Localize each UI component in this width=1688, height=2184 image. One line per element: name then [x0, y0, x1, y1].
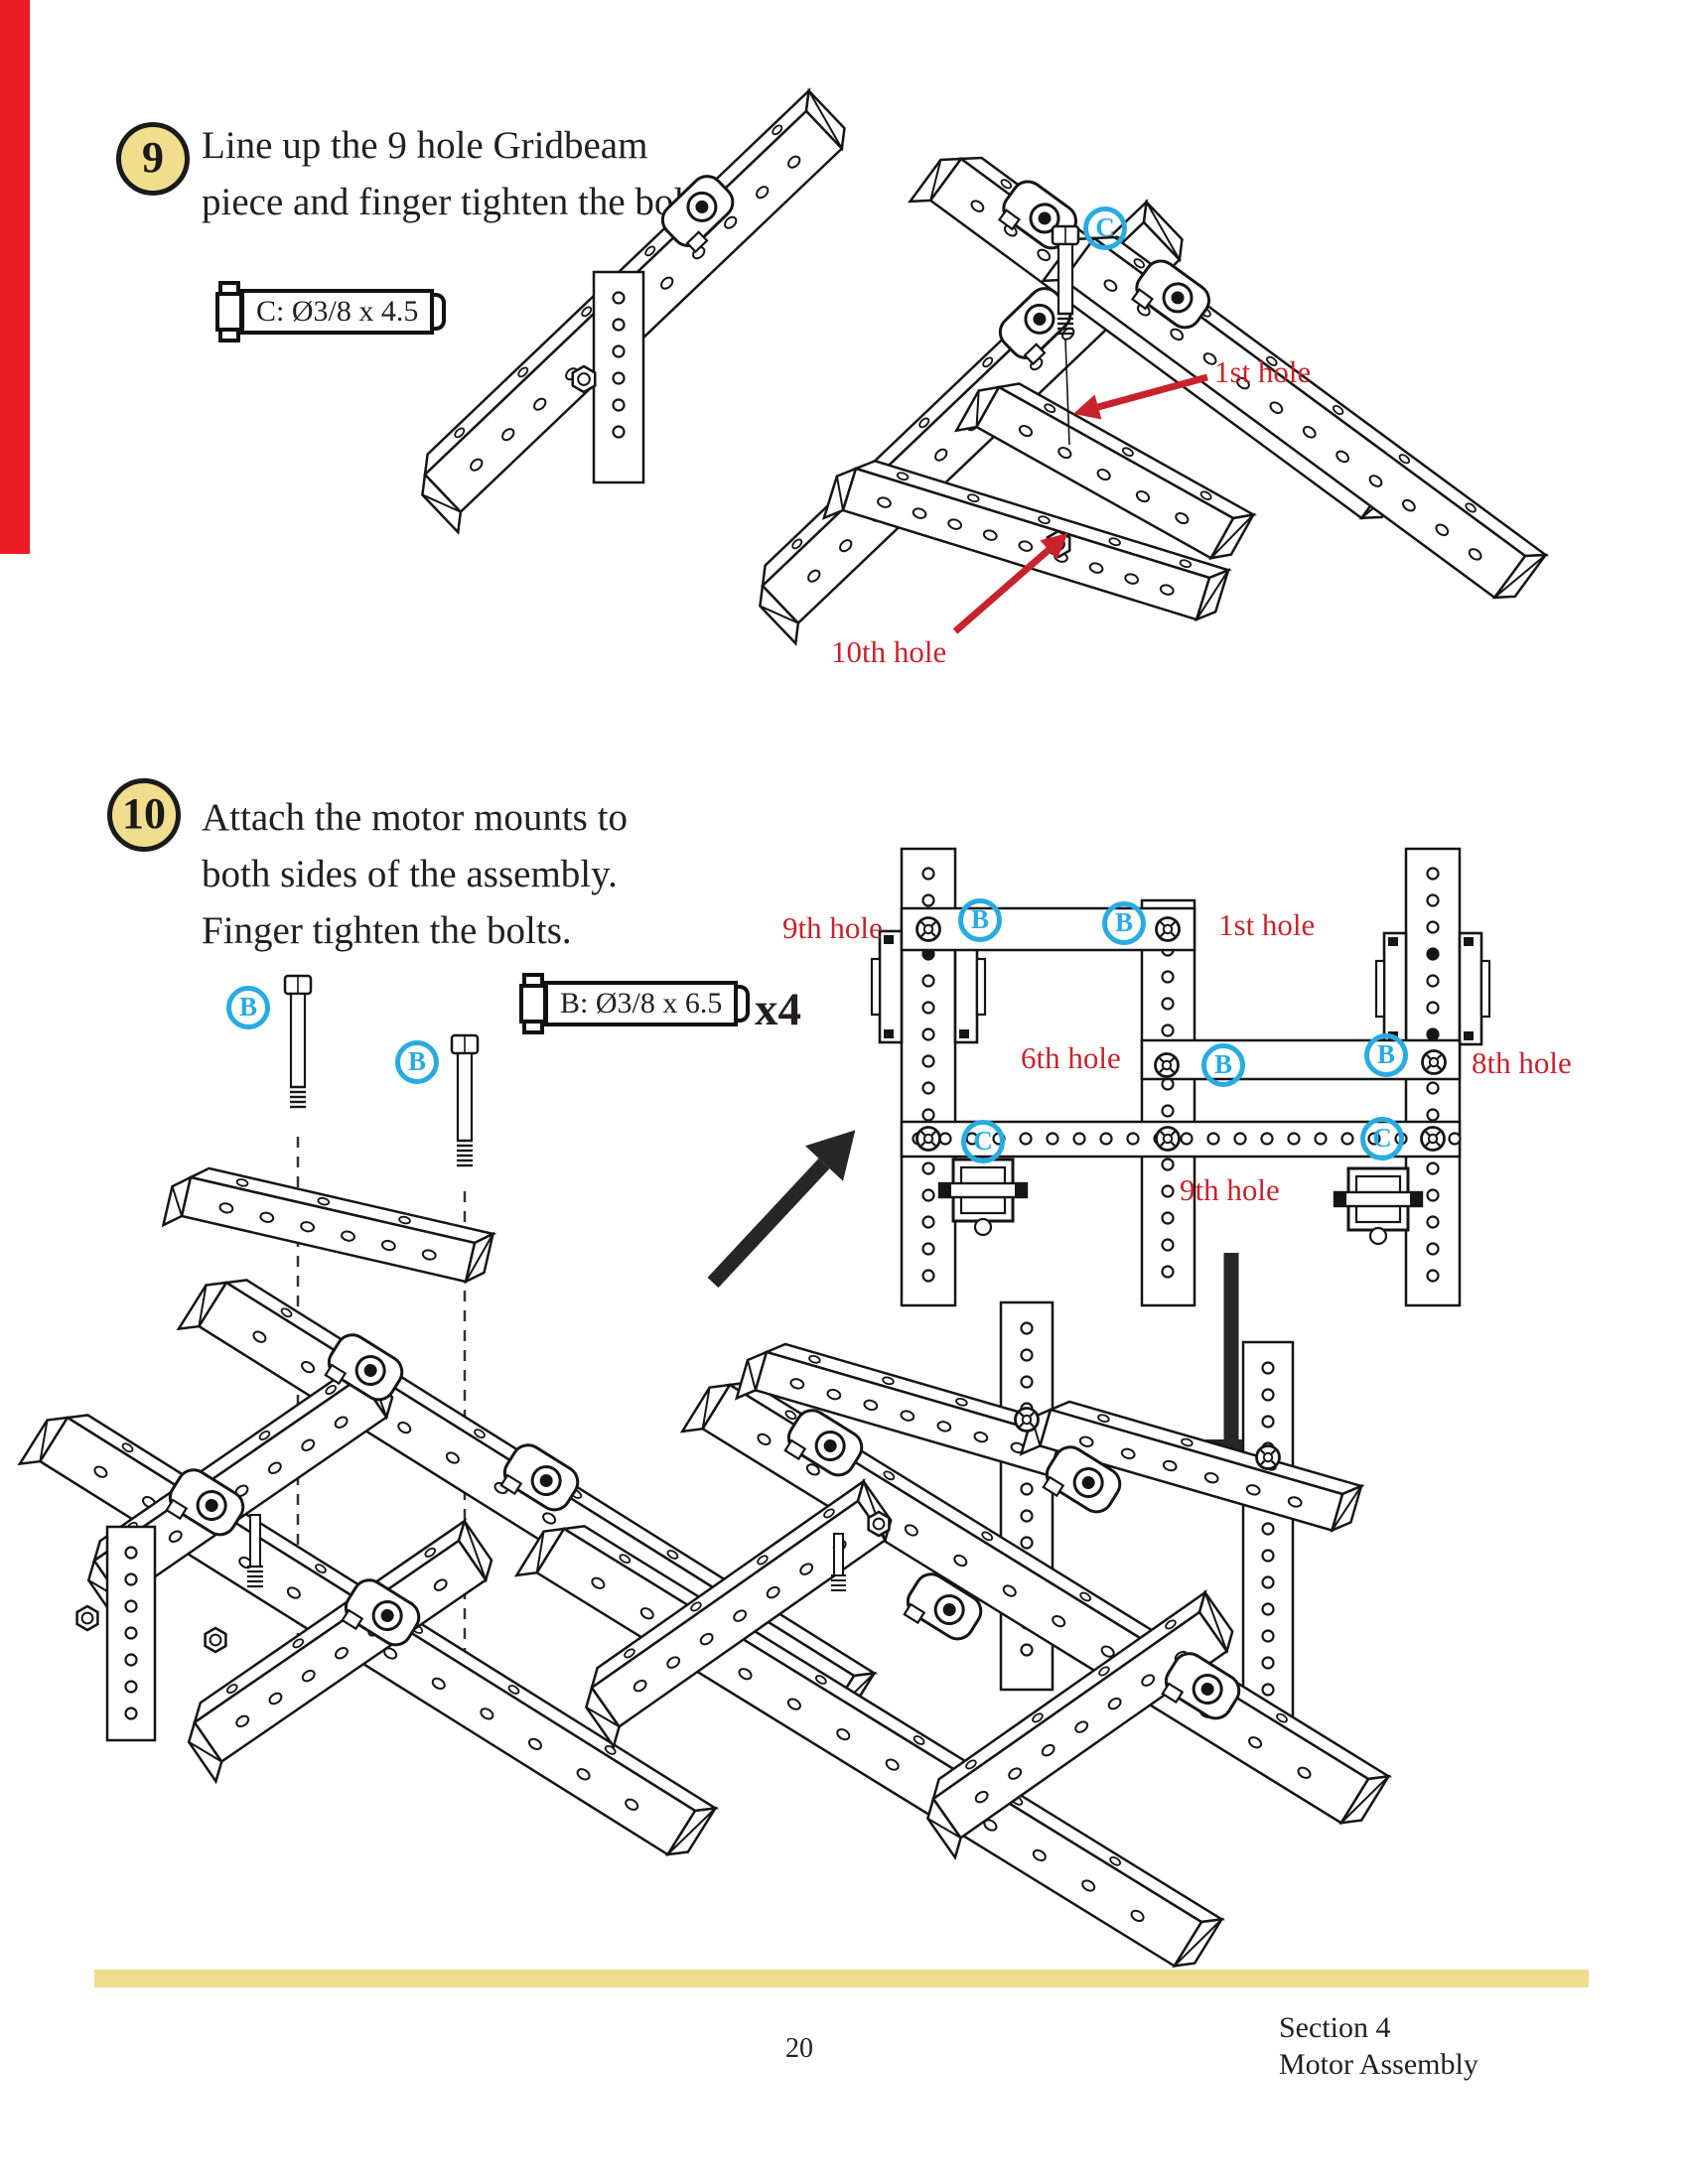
callout-b-front-1: B	[958, 898, 1002, 942]
label-8th-hole: 8th hole	[1472, 1046, 1572, 1080]
label-6th-hole: 6th hole	[1021, 1041, 1121, 1075]
step-10-badge: 10	[107, 778, 181, 852]
step-10-instruction-line1: Attach the motor mounts to	[202, 789, 628, 846]
step-10-instruction-line3: Finger tighten the bolts.	[202, 902, 572, 959]
step-9-assembly-diagram	[377, 79, 1628, 695]
callout-b-front-4: B	[1364, 1033, 1408, 1077]
bolt-head-icon	[215, 281, 243, 342]
page-edge-red-bar	[0, 0, 30, 554]
footer-yellow-bar	[94, 1970, 1589, 1987]
callout-b-front-3: B	[1201, 1043, 1245, 1087]
footer-section-line1: Section 4	[1279, 2009, 1478, 2046]
footer-section-line2: Motor Assembly	[1279, 2046, 1478, 2083]
callout-c-step9: C	[1083, 206, 1127, 250]
callout-b-bolt2: B	[395, 1040, 439, 1084]
footer-section-title: Section 4 Motor Assembly	[1279, 2009, 1478, 2083]
callout-c-front-1: C	[961, 1120, 1005, 1163]
callout-c-front-2: C	[1360, 1117, 1404, 1160]
step-10-number: 10	[122, 789, 166, 838]
label-1st-hole-step10: 1st hole	[1218, 908, 1315, 942]
label-9th-hole-bottom: 9th hole	[1180, 1173, 1280, 1207]
label-10th-hole-step9: 10th hole	[831, 635, 946, 669]
callout-b-front-2: B	[1102, 901, 1146, 945]
page-number: 20	[765, 2033, 834, 2065]
label-1st-hole-step9: 1st hole	[1214, 355, 1311, 389]
step-10-assembled-diagram	[536, 1281, 1678, 2005]
callout-b-bolt1: B	[226, 986, 270, 1029]
step-10-instruction-line2: both sides of the assembly.	[202, 846, 618, 902]
manual-page: 9 Line up the 9 hole Gridbeam piece and …	[0, 0, 1688, 2184]
label-9th-hole-top: 9th hole	[782, 911, 883, 945]
step-9-badge: 9	[116, 122, 190, 196]
step-9-number: 9	[142, 133, 164, 182]
